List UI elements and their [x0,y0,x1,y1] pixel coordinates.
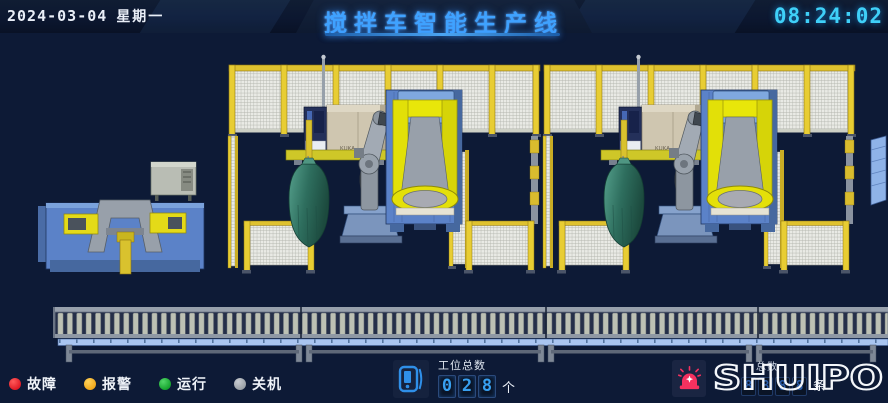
roller-conveyor [53,307,888,362]
station-counter-digits: 0 2 8 个 [438,375,515,398]
brand: SHUIPO [672,357,886,399]
legend-item-off: 关机 [234,374,282,394]
legend-label: 关机 [252,374,282,394]
hmi-panel-icon [393,360,429,398]
legend-item-running: 运行 [159,374,207,394]
legend-label: 故障 [27,374,57,394]
off-dot-icon [234,378,246,390]
production-line-scene: KUKA [0,0,888,403]
status-legend: 故障 报警 运行 关机 [9,374,282,394]
header-bar: 2024-03-04星期一 搅拌车智能生产线 08:24:02 [0,0,888,33]
fault-dot-icon [9,378,21,390]
production-cell-1 [228,55,541,274]
clamp-right-jaw [168,217,182,229]
blue-panel-right-edge [871,136,886,205]
tack-weld-station [38,162,204,274]
digit-box: 2 [458,375,476,398]
control-cabinet [151,162,196,201]
legend-label: 报警 [102,374,132,394]
title-underline [325,33,560,36]
production-cell-2 [543,55,856,274]
legend-item-alarm: 报警 [84,374,132,394]
center-clamp-post [120,240,131,274]
shuipo-logo: SHUIPO [710,357,886,399]
shuipo-logo-text: SHUIPO [713,358,883,397]
clamp-left-jaw [68,218,86,230]
clock-display: 08:24:02 [774,4,883,28]
running-dot-icon [159,378,171,390]
legend-item-fault: 故障 [9,374,57,394]
conveyor-braces [69,350,873,354]
digit-box: 0 [438,375,456,398]
legend-label: 运行 [177,374,207,394]
table-edge [38,206,46,262]
production-line-dashboard: KUKA [0,0,888,403]
station-counter-unit: 个 [502,377,515,398]
alarm-beacon-icon [672,360,706,397]
digit-box: 8 [478,375,496,398]
alarm-dot-icon [84,378,96,390]
station-counter: 工位总数 0 2 8 个 [393,357,515,398]
station-counter-label: 工位总数 [438,357,515,373]
